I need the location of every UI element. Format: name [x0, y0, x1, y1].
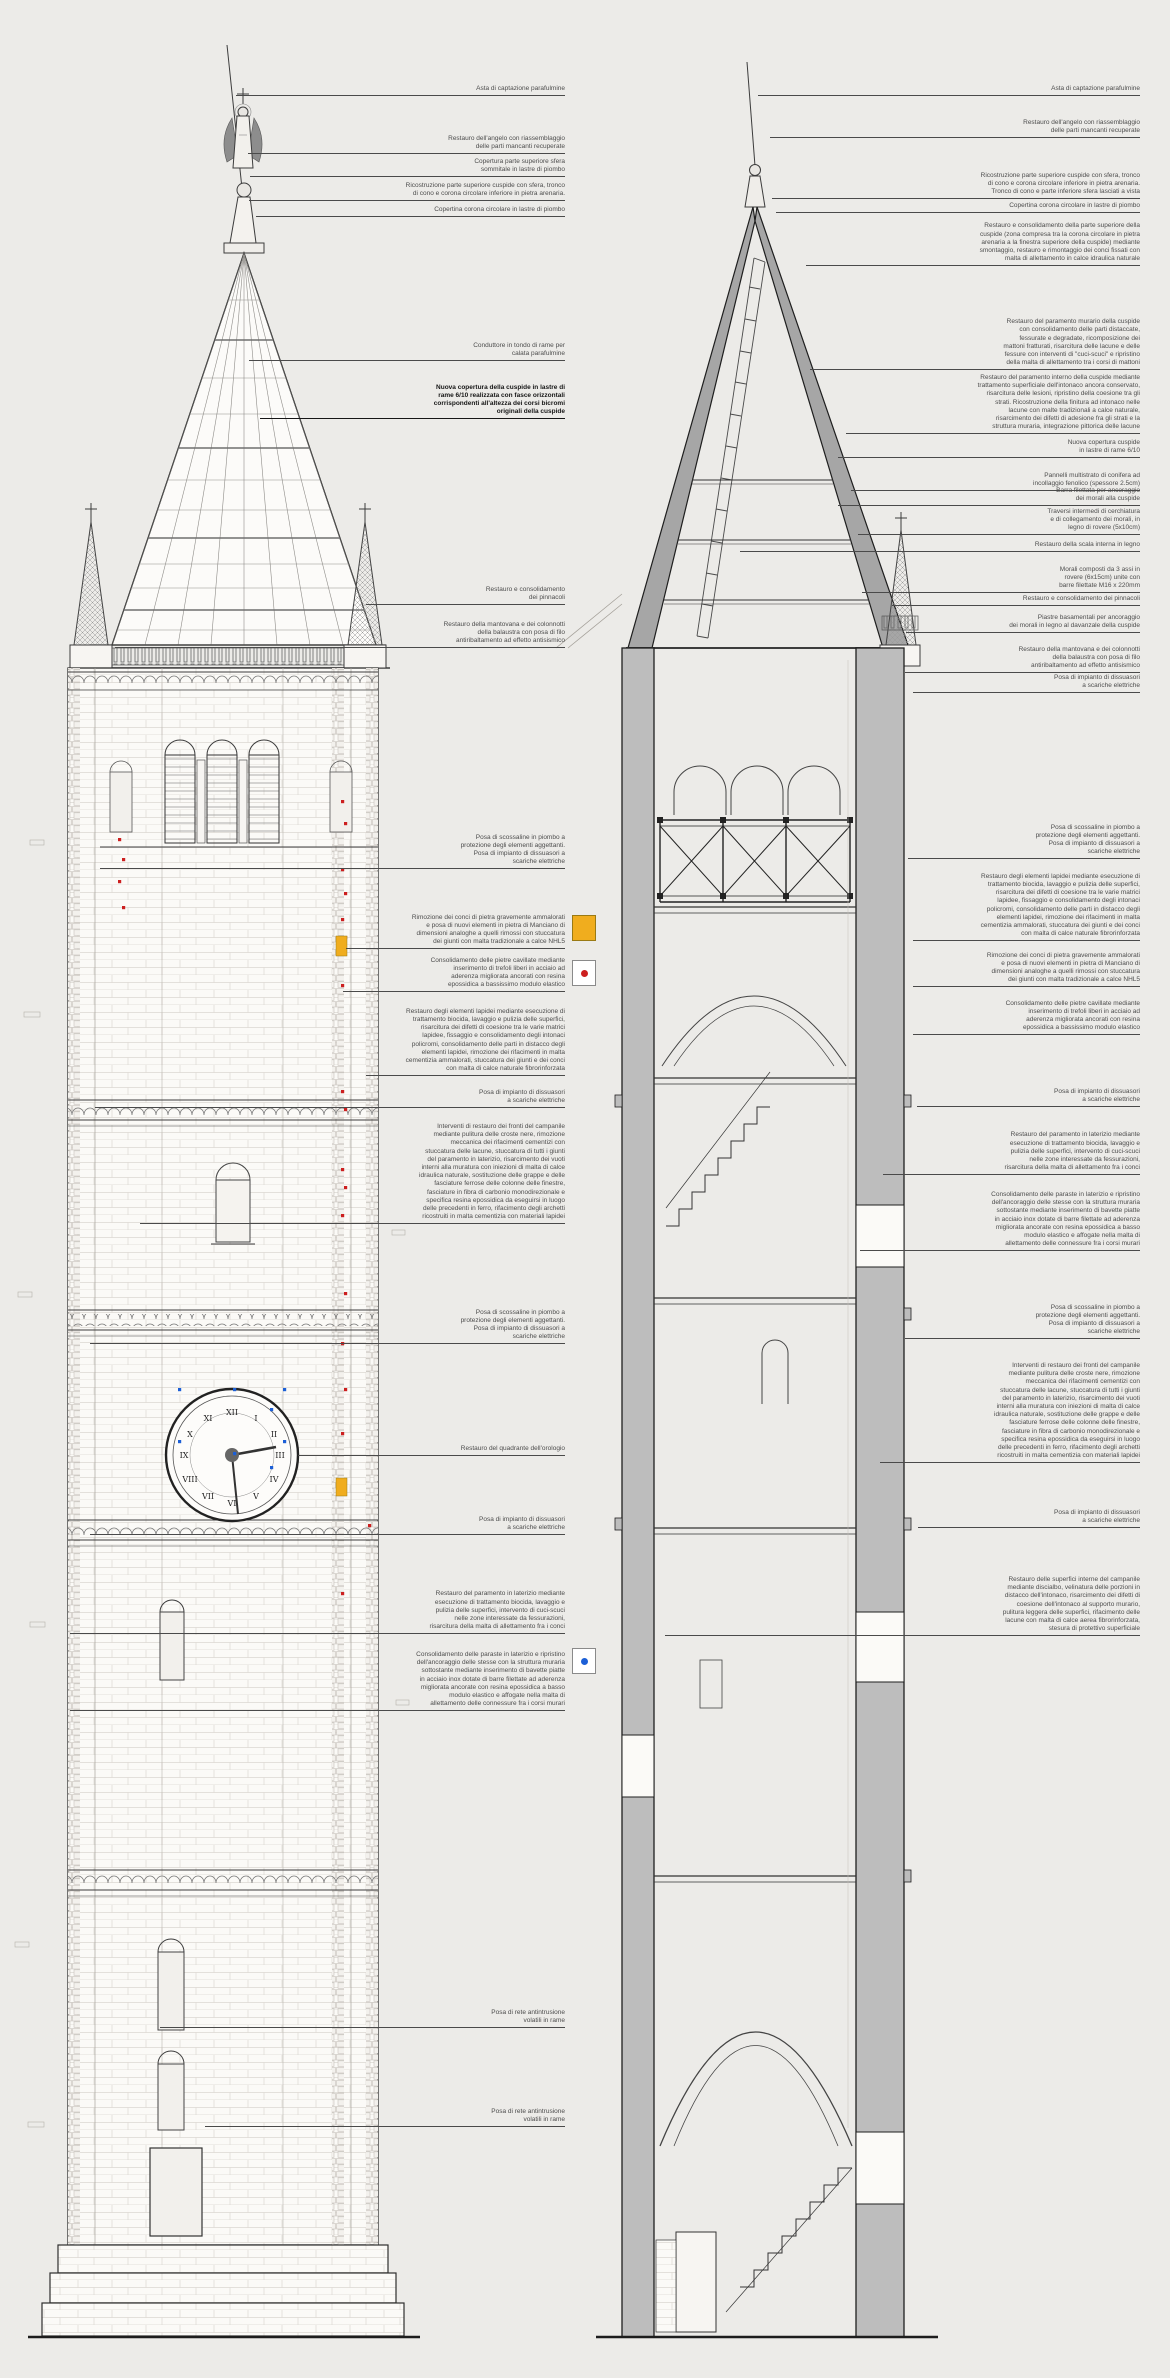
spire-cone [100, 253, 390, 645]
annotation-right-18: Restauro degli elementi lapidei mediante… [981, 873, 1140, 939]
annotation-right-8: Pannelli multistrato di conifera ad inco… [1033, 472, 1140, 488]
annotation-right-17: Posa di scossaline in piombo a protezion… [1036, 824, 1140, 857]
annotation-right-16: Posa di impianto di dissuasori a scarich… [1054, 674, 1140, 690]
annotation-left-1: Restauro dell'angelo con riassemblaggio … [448, 135, 565, 151]
annotation-right-4: Restauro e consolidamento della parte su… [980, 222, 1140, 263]
annotation-right-19: Rimozione dei conci di pietra gravemente… [987, 952, 1140, 985]
leader-line [160, 2027, 565, 2028]
leader-line [905, 672, 1140, 673]
annotation-right-26: Posa di impianto di dissuasori a scarich… [1054, 1509, 1140, 1525]
leader-line [249, 200, 565, 201]
tower-base [42, 2245, 404, 2336]
leader-line [770, 137, 1140, 138]
swatch-dot-icon [581, 1658, 588, 1665]
leader-line [906, 632, 1140, 633]
summit-sphere [224, 183, 264, 253]
leader-line [883, 1174, 1140, 1175]
pinnacle-left [70, 503, 112, 668]
leader-line [100, 868, 565, 869]
annotation-left-7: Restauro e consolidamento dei pinnacoli [486, 586, 565, 602]
interior-stairs-bottom [656, 2168, 852, 2332]
annotation-right-24: Posa di scossaline in piombo a protezion… [1036, 1304, 1140, 1337]
interior-stairs-mid [666, 1072, 770, 1226]
clock: XIII IIIII IVV VIVII VIIIIX XXI [166, 1389, 298, 1521]
svg-text:V: V [252, 1492, 259, 1501]
leader-line [343, 991, 565, 992]
leader-line [90, 1534, 565, 1535]
swatch-dot-icon [581, 970, 588, 977]
annotation-left-20: Posa di rete antintrusione volatili in r… [491, 2009, 565, 2025]
leader-line [70, 1710, 565, 1711]
elevation-drawing: XIII IIIII IVV VIVII VIIIIX XXI [15, 45, 420, 2337]
leader-line [70, 1633, 565, 1634]
annotation-right-5: Restauro del paramento murario della cus… [1003, 318, 1140, 367]
annotation-right-1: Restauro dell'angelo con riassemblaggio … [1023, 119, 1140, 135]
annotation-right-23: Consolidamento delle paraste in laterizi… [991, 1191, 1140, 1248]
leader-line [806, 265, 1140, 266]
leader-line [913, 1034, 1140, 1035]
annotation-left-0: Asta di captazione parafulmine [476, 85, 565, 93]
legend-swatch-stone-replacement [572, 915, 596, 941]
interior-vaults [660, 996, 852, 2146]
svg-text:IX: IX [180, 1451, 189, 1460]
annotation-right-9: Barra filettata per ancoraggio dei moral… [1056, 487, 1140, 503]
leader-line [905, 1338, 1140, 1339]
leader-line [908, 858, 1140, 859]
annotation-left-15: Posa di scossaline in piombo a protezion… [461, 1309, 565, 1342]
leader-line [95, 1107, 565, 1108]
annotation-left-9: Posa di scossaline in piombo a protezion… [461, 834, 565, 867]
annotation-left-14: Interventi di restauro dei fronti del ca… [419, 1123, 565, 1221]
leader-line [918, 1527, 1140, 1528]
leader-line [858, 534, 1140, 535]
annotation-right-13: Restauro e consolidamento dei pinnacoli [1023, 595, 1140, 603]
annotation-right-3: Copertina corona circolare in lastre di … [1009, 202, 1140, 210]
section-finial [745, 165, 765, 208]
annotation-left-8: Restauro della mantovana e dei colonnott… [444, 621, 565, 646]
leader-line [838, 457, 1140, 458]
annotation-left-4: Copertina corona circolare in lastre di … [434, 206, 565, 214]
annotation-left-12: Restauro degli elementi lapidei mediante… [406, 1008, 565, 1074]
spire-section-walls [628, 207, 909, 648]
annotation-right-14: Piastre basamentali per ancoraggio dei m… [1009, 614, 1140, 630]
legend-swatch-cracked-stone [572, 960, 596, 986]
annotation-left-21: Posa di rete antintrusione volatili in r… [491, 2108, 565, 2124]
leader-line [248, 153, 565, 154]
annotation-left-13: Posa di impianto di dissuasori a scarich… [479, 1089, 565, 1105]
annotation-right-12: Morali composti da 3 assi in rovere (6x1… [1059, 566, 1140, 591]
drawing-canvas: XIII IIIII IVV VIVII VIIIIX XXI [0, 0, 1170, 2378]
annotation-right-27: Restauro delle superfici interne del cam… [1003, 1576, 1140, 1633]
leader-line [260, 418, 565, 419]
annotation-left-6: Nuova copertura della cuspide in lastre … [434, 384, 565, 417]
leader-line [892, 605, 1140, 606]
annotation-right-6: Restauro del paramento interno della cus… [978, 374, 1140, 431]
section-lightning-rod [747, 62, 755, 166]
svg-text:X: X [187, 1430, 193, 1439]
annotation-right-0: Asta di captazione parafulmine [1051, 85, 1140, 93]
leader-line [913, 692, 1140, 693]
leader-line [776, 212, 1140, 213]
annotation-right-25: Interventi di restauro dei fronti del ca… [994, 1362, 1140, 1460]
annotation-left-11: Consolidamento delle pietre cavillate me… [431, 957, 565, 990]
annotation-left-18: Restauro del paramento in laterizio medi… [430, 1590, 565, 1631]
leader-line [810, 369, 1140, 370]
leader-line [205, 2126, 565, 2127]
svg-text:VII: VII [201, 1492, 214, 1501]
annotation-right-10: Traversi intermedi di cerchiatura e di c… [1047, 508, 1140, 533]
floor-slabs [654, 907, 856, 1882]
leader-line [846, 433, 1140, 434]
leader-line [256, 216, 565, 217]
leader-line [346, 948, 565, 949]
annotation-left-17: Posa di impianto di dissuasori a scarich… [479, 1516, 565, 1532]
base-door [150, 2148, 202, 2236]
annotation-right-20: Consolidamento delle pietre cavillate me… [1006, 1000, 1140, 1033]
annotation-left-3: Ricostruzione parte superiore cuspide co… [406, 182, 565, 198]
svg-text:I: I [254, 1414, 257, 1423]
annotation-left-5: Conduttore in tondo di rame per calata p… [473, 342, 565, 358]
section-drawing [556, 62, 938, 2337]
belfry-truss [657, 817, 853, 902]
leader-line [880, 1462, 1140, 1463]
interior-door [700, 1340, 788, 1708]
annotation-right-22: Restauro del paramento in laterizio medi… [1005, 1131, 1140, 1172]
leader-line [115, 647, 565, 648]
annotation-right-7: Nuova copertura cuspide in lastre di ram… [1068, 439, 1140, 455]
annotation-right-15: Restauro della mantovana e dei colonnott… [1019, 646, 1140, 671]
leader-line [366, 1075, 565, 1076]
leader-line [298, 1455, 565, 1456]
annotation-left-19: Consolidamento delle paraste in laterizi… [416, 1651, 565, 1708]
leader-line [90, 1343, 565, 1344]
leader-line [913, 986, 1140, 987]
leader-line [860, 1250, 1140, 1251]
leader-line [917, 1106, 1140, 1107]
leader-line [838, 505, 1140, 506]
annotation-right-21: Posa di impianto di dissuasori a scarich… [1054, 1088, 1140, 1104]
annotation-left-16: Restauro del quadrante dell'orologio [461, 1445, 565, 1453]
svg-text:IV: IV [270, 1475, 279, 1484]
legend-swatch-paraste [572, 1648, 596, 1674]
svg-text:XII: XII [226, 1408, 238, 1417]
leader-line [772, 198, 1140, 199]
svg-text:XI: XI [204, 1414, 213, 1423]
adjoining-roof [556, 594, 622, 648]
annotation-right-2: Ricostruzione parte superiore cuspide co… [981, 172, 1140, 197]
leader-line [913, 940, 1140, 941]
leader-line [862, 592, 1140, 593]
svg-text:VI: VI [227, 1499, 237, 1508]
leader-line [758, 95, 1140, 96]
leader-line [366, 604, 565, 605]
svg-text:VIII: VIII [181, 1475, 197, 1484]
svg-text:III: III [275, 1451, 284, 1460]
leader-line [249, 360, 565, 361]
belfry-interior-arcade [674, 766, 840, 815]
annotation-left-2: Copertura parte superiore sfera sommital… [474, 158, 565, 174]
leader-line [740, 551, 1140, 552]
leader-line [665, 1635, 1140, 1636]
leader-line [250, 176, 565, 177]
svg-text:II: II [271, 1430, 277, 1439]
annotation-left-10: Rimozione dei conci di pietra gravemente… [412, 914, 565, 947]
tower-drawings: XIII IIIII IVV VIVII VIIIIX XXI [0, 0, 1170, 2378]
leader-line [140, 1223, 565, 1224]
leader-line [236, 95, 565, 96]
annotation-right-11: Restauro della scala interna in legno [1035, 541, 1140, 549]
angel-statue [224, 88, 262, 168]
